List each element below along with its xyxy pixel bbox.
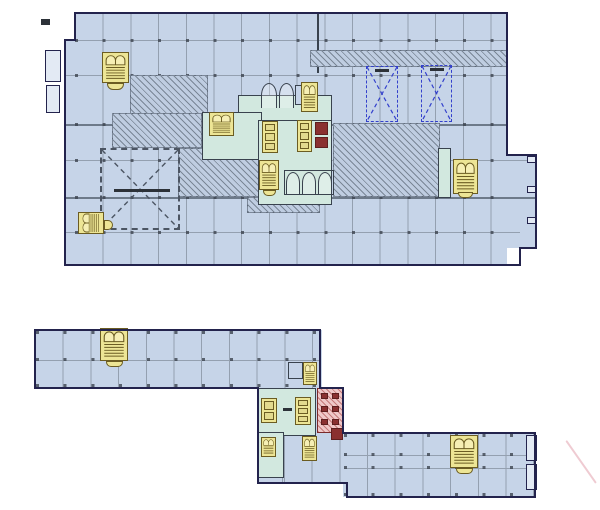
elevator-cab (264, 401, 274, 410)
toilet-fixture (332, 419, 339, 425)
stair-symbol (101, 329, 127, 360)
toilet-fixture (321, 419, 328, 425)
stair-bottom-left (78, 212, 104, 234)
toilet-fixture (321, 406, 328, 412)
toilet-fixture (321, 393, 328, 399)
elevator-bank-a (262, 121, 278, 153)
left-wing-stair-landing (106, 361, 123, 367)
elevator-cab (300, 142, 309, 149)
left-balcony (45, 50, 61, 82)
lower-core-stair-north (303, 362, 317, 385)
core-escalator (209, 112, 234, 136)
stair-right-landing (458, 192, 473, 198)
elevator-cab (298, 408, 308, 414)
shaft-x-diagonals (422, 66, 451, 121)
elevator-cab (298, 400, 308, 406)
stair-symbol (260, 161, 278, 189)
elevator-bank-b (297, 120, 312, 152)
hatched-zone (310, 50, 507, 67)
stair-symbol (210, 113, 233, 135)
service-room-red (315, 122, 328, 135)
elevator-cab (300, 132, 309, 139)
shaft-annotation-tag (375, 69, 389, 72)
core-stair-north (301, 82, 318, 112)
elevator-cab (298, 416, 308, 422)
atrium-void-x (100, 148, 180, 230)
edge-notch (527, 186, 536, 193)
toilet-fixture (332, 406, 339, 412)
column-marker-row (36, 358, 320, 361)
lower-core-stair-west (261, 437, 276, 457)
right-wing-stair (450, 435, 478, 468)
annotation-tag (41, 19, 50, 25)
column-marker-row (344, 493, 534, 496)
stray-pink-mark (565, 440, 596, 484)
toilet-stall-arc (318, 172, 332, 194)
toilet-fixture (332, 393, 339, 399)
stair-symbol (302, 83, 317, 111)
column-marker-row (344, 466, 534, 469)
column-marker-row (75, 231, 507, 234)
column-marker-row (36, 384, 320, 387)
toilet-stall-arc (302, 172, 316, 194)
hatched-zone (112, 113, 202, 148)
right-stair-lobby (438, 148, 451, 198)
edge-notch (527, 217, 536, 224)
core-annotation-tag (283, 408, 292, 411)
elevator-cab (265, 133, 275, 140)
core-stair-south (259, 160, 279, 190)
toilet-room (284, 170, 334, 195)
shaft-opening-1 (366, 66, 398, 122)
stair-symbol (262, 438, 275, 456)
left-balcony (46, 85, 60, 113)
service-room-red (331, 428, 343, 440)
left-wing-stair (100, 328, 128, 361)
stair-top-left (102, 52, 129, 83)
floor-plan-drawing: Two-level architectural floor plan drawi… (0, 0, 600, 510)
stair-symbol (103, 53, 128, 82)
wing-end-panel (526, 435, 537, 461)
lower-right-wing-slab (343, 433, 535, 497)
column-marker-row (75, 39, 507, 42)
column-marker-row (36, 331, 320, 334)
lower-core-stair-south (302, 436, 317, 461)
lower-elevator-bank-b (295, 397, 311, 425)
shaft-opening-2 (421, 65, 452, 122)
right-wing-stair-landing (456, 468, 473, 474)
lower-elevator-bank-a (261, 398, 277, 423)
lower-core-small-room (288, 362, 303, 379)
upper-slab-right-extension (507, 155, 536, 248)
toilet-stall-arc (286, 172, 300, 194)
elevator-cab (300, 123, 309, 130)
stair-right (453, 159, 478, 194)
wing-end-panel (526, 464, 537, 490)
elevator-cab (264, 412, 274, 421)
shaft-annotation-tag (430, 68, 444, 71)
wet-room-red-hatch (317, 388, 343, 433)
hatched-zone (333, 123, 440, 197)
vestibule-arch (261, 83, 277, 108)
column-marker-row (344, 434, 534, 437)
vestibule-arch (279, 83, 294, 108)
service-room-red (315, 137, 328, 148)
elevator-cab (265, 124, 275, 131)
stair-symbol (81, 211, 101, 235)
elevator-cab (265, 143, 275, 150)
stair-symbol (451, 436, 477, 467)
stair-symbol (304, 363, 316, 384)
void-annotation-tag (114, 189, 170, 192)
column-marker-row (344, 453, 534, 456)
stair-symbol (454, 160, 477, 193)
edge-notch (527, 156, 536, 163)
stair-symbol (303, 437, 316, 460)
shaft-x-diagonals (367, 67, 397, 121)
